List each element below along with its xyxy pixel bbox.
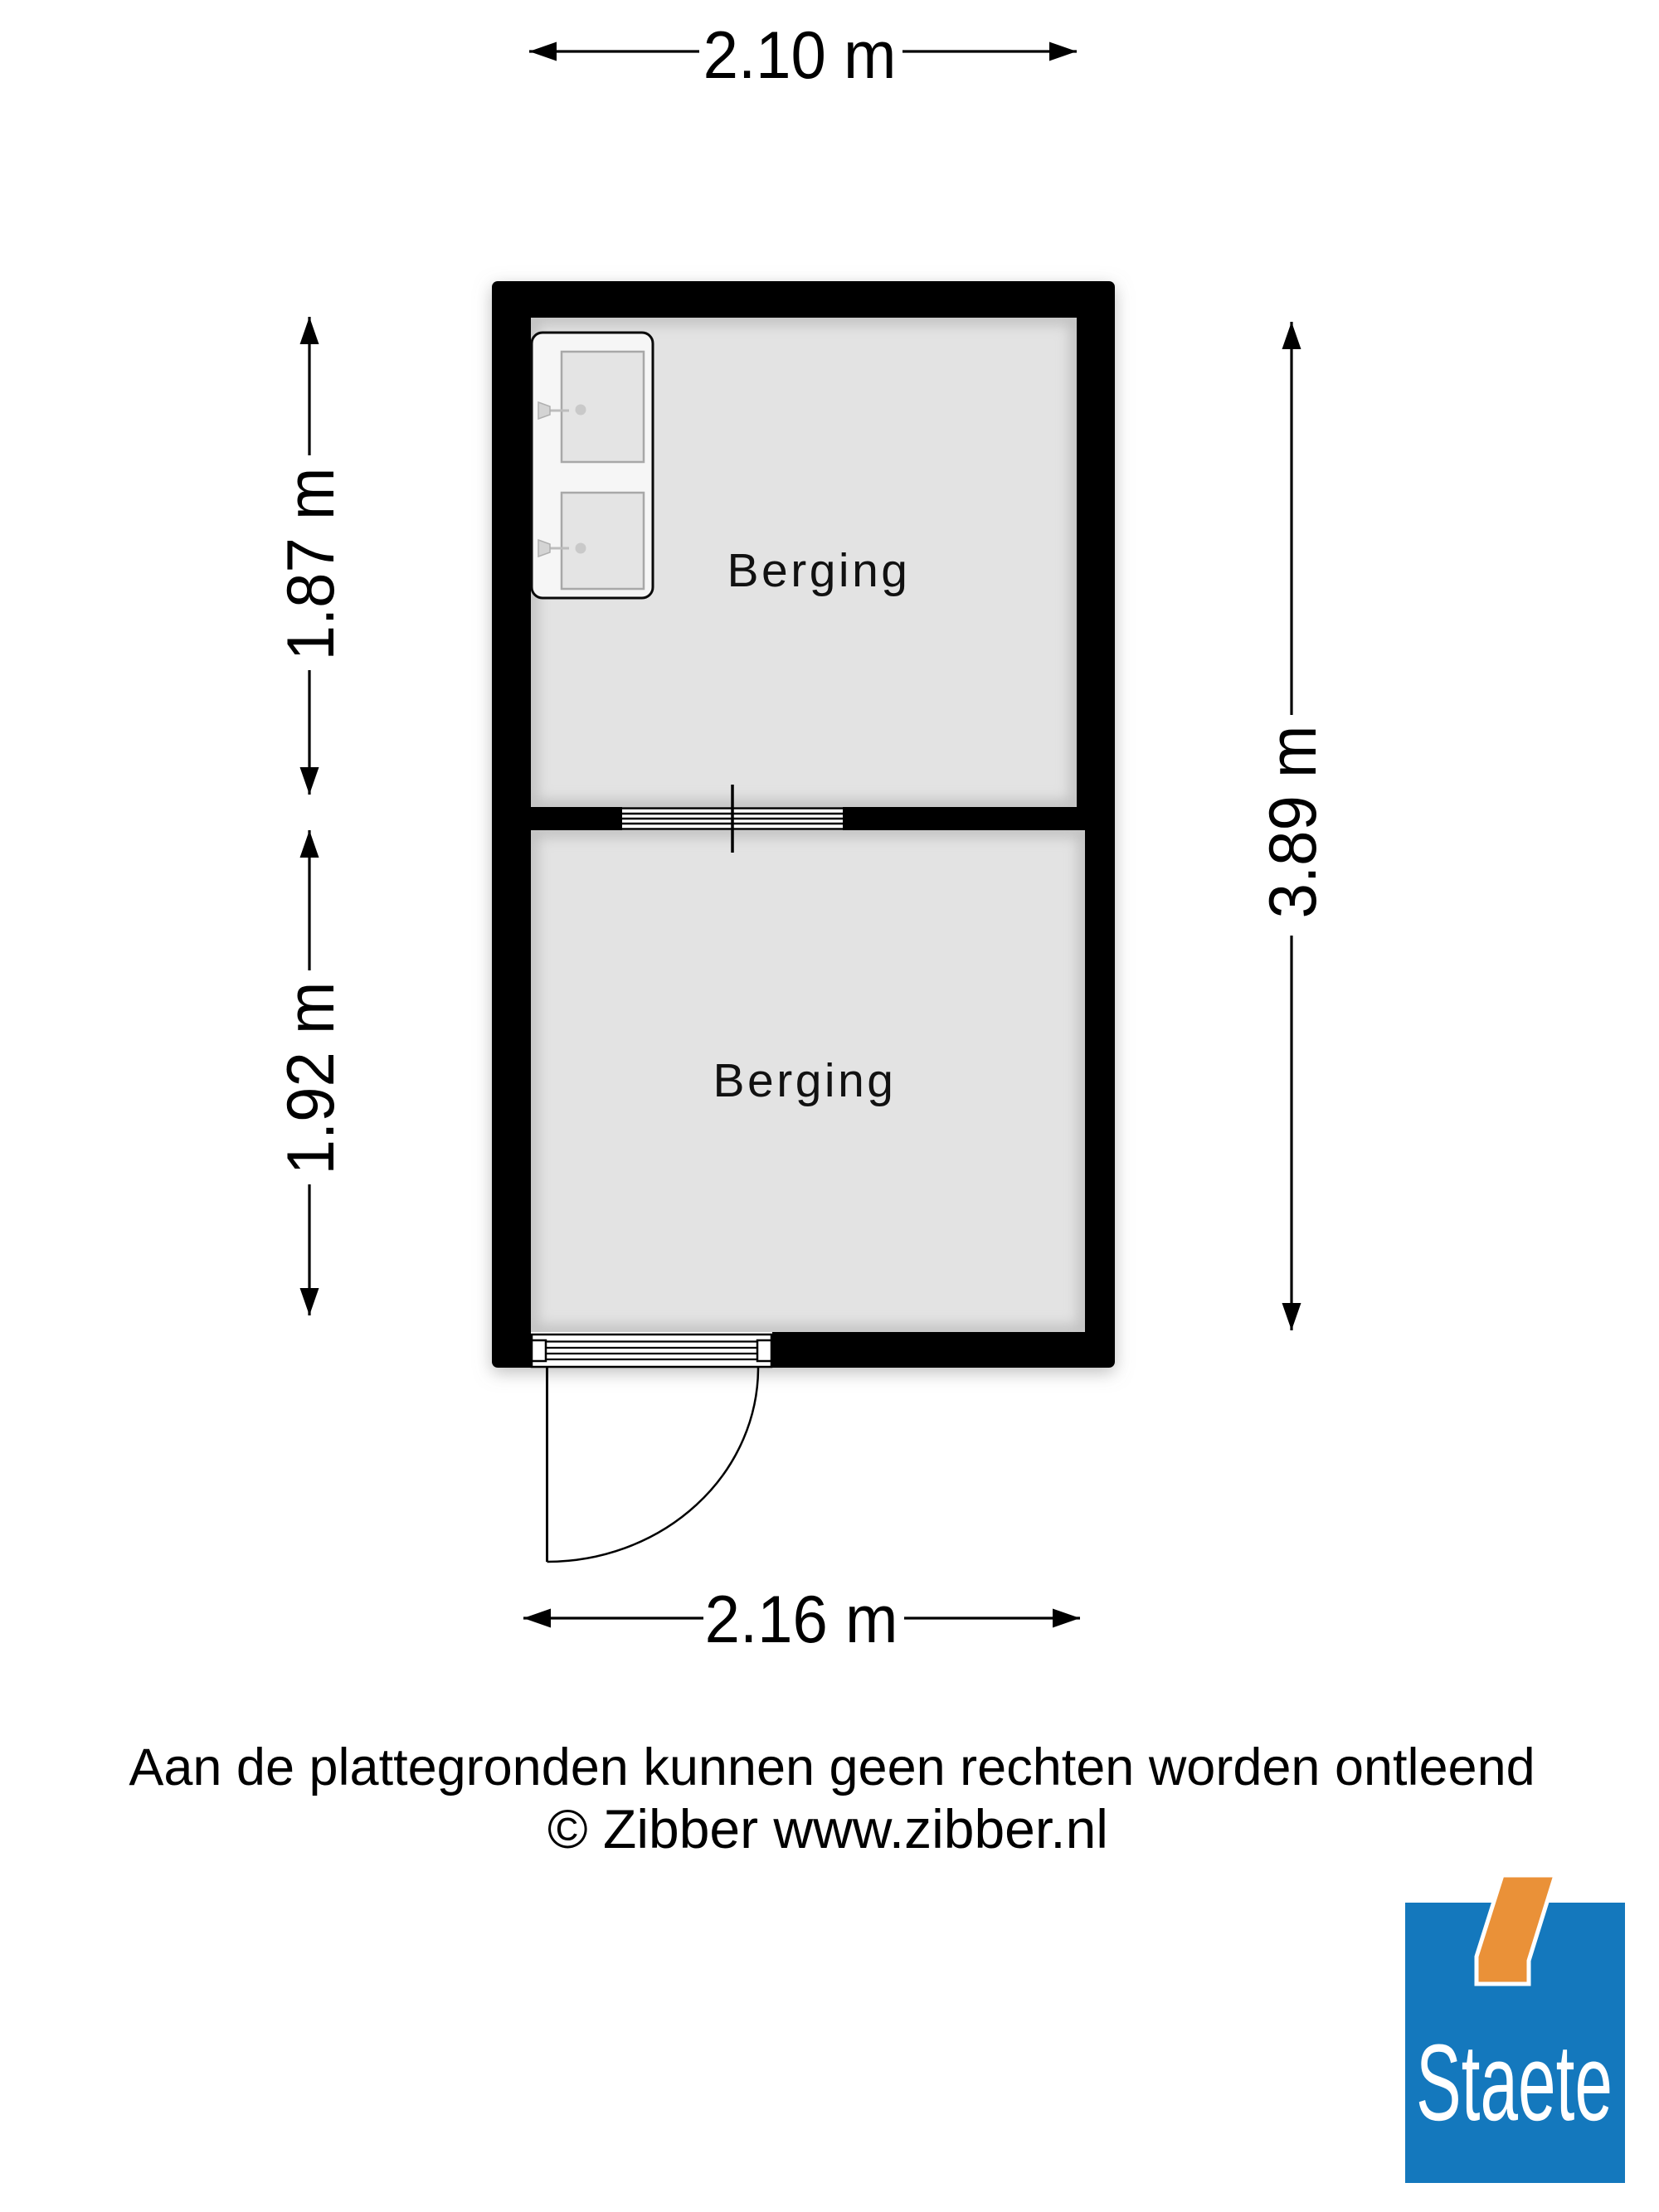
svg-text:1.87 m: 1.87 m xyxy=(273,468,348,661)
svg-text:Staete: Staete xyxy=(1416,2021,1613,2143)
svg-text:1.92 m: 1.92 m xyxy=(273,982,348,1175)
svg-text:© Zibber www.zibber.nl: © Zibber www.zibber.nl xyxy=(547,1798,1108,1860)
svg-text:Berging: Berging xyxy=(713,1054,897,1107)
svg-text:2.16 m: 2.16 m xyxy=(705,1582,898,1657)
svg-text:3.89 m: 3.89 m xyxy=(1255,726,1331,919)
svg-text:Aan de plattegronden kunnen ge: Aan de plattegronden kunnen geen rechten… xyxy=(129,1738,1535,1796)
svg-text:Berging: Berging xyxy=(727,544,911,597)
svg-text:2.10 m: 2.10 m xyxy=(703,17,897,93)
